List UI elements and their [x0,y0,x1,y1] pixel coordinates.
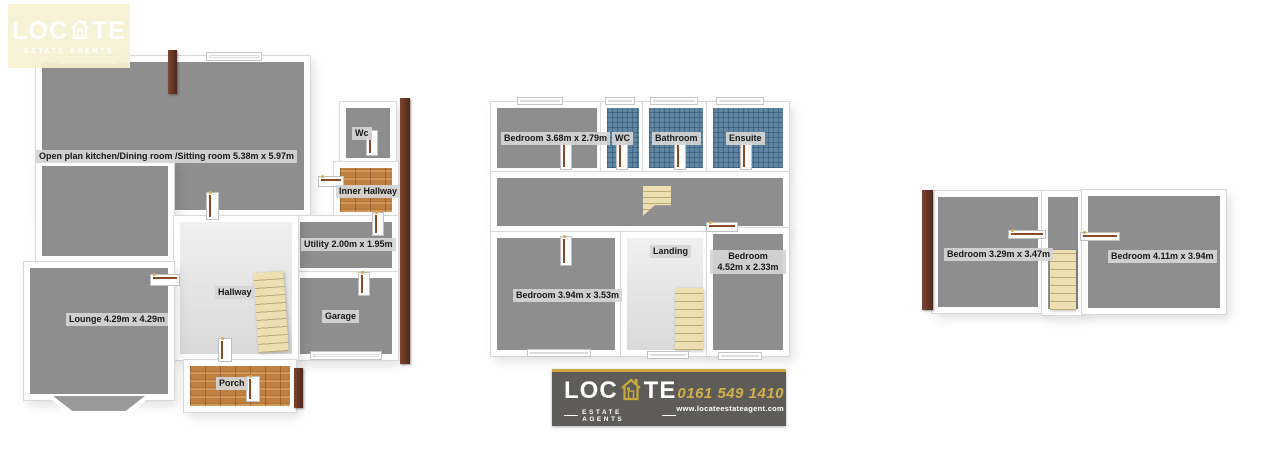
room-corridor [497,178,783,226]
door-marker [206,192,219,220]
watermark-brand: LOC TE [12,17,126,46]
brand-text-post: TE [644,379,677,403]
door-marker [616,142,628,170]
floorplan-image: Open plan kitchen/Dining room /Sitting r… [0,0,1280,459]
room-label-open-plan: Open plan kitchen/Dining room /Sitting r… [36,150,297,163]
door-marker [706,222,738,232]
stairs-landing [675,288,703,350]
watermark-logo: LOC TE ESTATE AGENTS [8,4,130,68]
wall-edge [294,368,303,408]
garage-door [310,351,382,360]
window [605,97,635,105]
room-label-ensuite: Ensuite [726,132,765,145]
door-marker [560,236,572,266]
room-label-bedroom-3: Bedroom 4.52m x 2.33m [710,250,786,274]
room-label-inner-hallway: Inner Hallway [336,185,400,198]
phone-number: 0161 549 1410 [677,385,784,402]
door-marker [674,142,686,170]
room-label-garage: Garage [322,310,359,323]
brand-banner: LOC TE ESTATE AGENTS 016 [552,369,786,426]
tagline-rule-left [564,415,578,416]
wall-edge [400,98,410,364]
door-marker [740,142,752,170]
door-marker [218,338,232,362]
house-icon [618,376,644,407]
bay-window [48,396,150,416]
window [527,349,591,357]
window [718,352,762,360]
brand-text-post: TE [92,19,126,44]
room-label-hallway: Hallway [215,286,255,299]
door-marker [1080,232,1120,241]
room-label-bedroom-4: Bedroom 3.29m x 3.47m [944,248,1053,261]
door-marker [150,274,180,286]
window [716,97,764,105]
window [647,351,689,359]
room-label-landing: Landing [650,245,691,258]
watermark-tagline: ESTATE AGENTS [24,48,114,55]
room-label-wc-first: WC [612,132,633,145]
door-marker [246,376,260,402]
door-marker [358,272,370,296]
room-label-bedroom-2: Bedroom 3.94m x 3.53m [513,289,622,302]
door-marker [372,212,384,236]
tagline-rule-right [662,415,676,416]
wall-edge [922,190,933,310]
window [517,97,563,105]
room-label-bathroom: Bathroom [652,132,701,145]
room-label-bedroom-5: Bedroom 4.11m x 3.94m [1108,250,1217,263]
room-label-bedroom-1: Bedroom 3.68m x 2.79m [501,132,610,145]
room-label-lounge: Lounge 4.29m x 4.29m [66,313,168,326]
stairs-second [1050,250,1076,310]
website-url: www.locateestateagent.com [676,404,784,413]
stairs-ground [253,271,289,353]
room-label-wc: Wc [352,127,372,140]
brand-text-pre: LOC [564,379,618,403]
door-marker [1008,230,1046,239]
brand-text-pre: LOC [12,19,68,44]
room-lounge [30,268,168,394]
wall-edge [168,50,177,94]
window [650,97,698,105]
room-label-porch: Porch [216,377,248,390]
window [206,52,262,61]
house-icon [68,17,92,46]
room-label-utility: Utility 2.00m x 1.95m [301,238,396,251]
banner-logo: LOC TE ESTATE AGENTS [564,376,676,423]
room-open-plan-patch [44,182,166,252]
banner-tagline: ESTATE AGENTS [582,409,658,423]
